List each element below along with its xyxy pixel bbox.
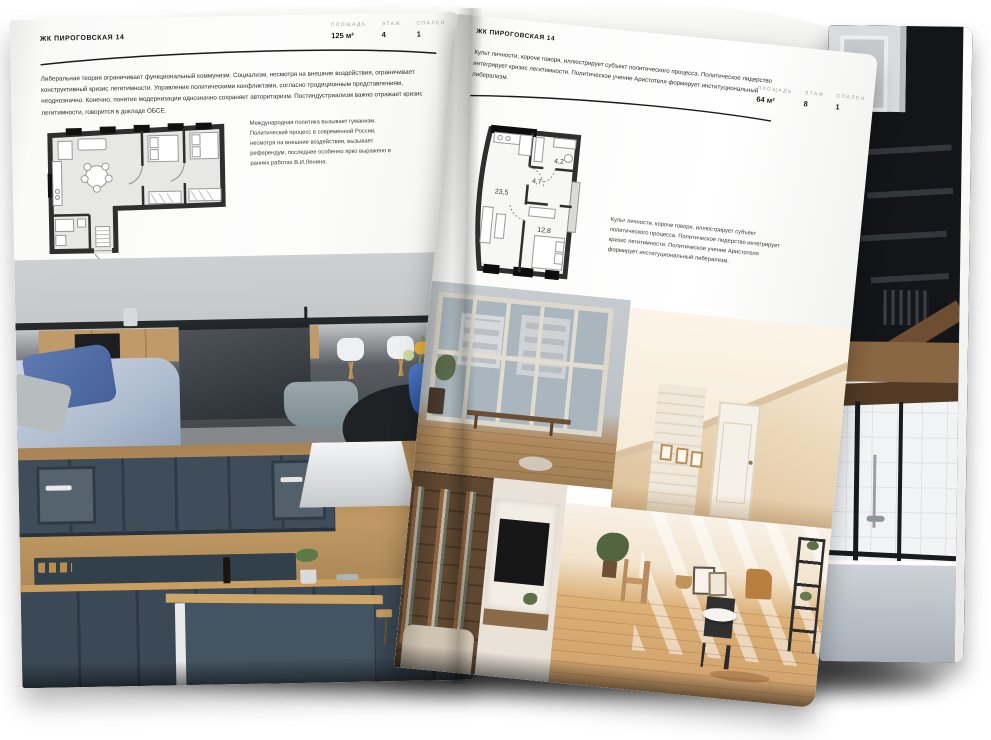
bar-stool [376, 609, 392, 617]
plan-caption: Международная политика вызывает гуманизм… [250, 117, 403, 170]
island-top [165, 594, 382, 605]
stat-area: ПЛОЩАДЬ 64 м² [756, 86, 793, 107]
wine-bottle [223, 557, 230, 583]
photo-sunny-room [548, 503, 831, 708]
photo-kitchen-living [14, 252, 470, 453]
window-mullions [432, 296, 609, 431]
project-title: ЖК ПИРОГОВСКАЯ 14 [476, 28, 555, 43]
right-page: ЖК ПИРОГОВСКАЯ 14 Культ личности, короче… [394, 14, 878, 708]
svg-text:12,8: 12,8 [537, 227, 551, 235]
svg-text:4,2: 4,2 [554, 158, 564, 166]
wall-frame [690, 451, 704, 468]
stat-area: ПЛОЩАДЬ 125 м² [331, 22, 367, 41]
project-title: ЖК ПИРОГОВСКАЯ 14 [40, 34, 125, 43]
safari-chair [745, 568, 772, 599]
white-chair [337, 338, 364, 362]
stat-floor: ЭТАЖ 8 [803, 90, 825, 110]
lead-paragraph: Либеральная теория ограничивает функцион… [41, 66, 440, 118]
pan [337, 574, 359, 580]
leaning-frame [708, 572, 726, 596]
chair [427, 387, 445, 414]
svg-text:23,5: 23,5 [494, 188, 508, 196]
herb-plant [296, 548, 318, 561]
plan-caption: Культ личности, короче говоря, иллюстрир… [607, 216, 792, 273]
sofa [400, 624, 475, 674]
stat-floor: ЭТАЖ 4 [381, 21, 401, 39]
photo-attic-room [611, 308, 851, 529]
flower [403, 349, 414, 360]
photo-balcony-window [413, 281, 631, 490]
svg-text:4,7: 4,7 [532, 178, 542, 186]
floor-plan-125 [37, 112, 236, 262]
apartment-stats: ПЛОЩАДЬ 125 м² ЭТАЖ 4 СПАЛЕН 1 [331, 20, 446, 40]
photo-shelving-tv [394, 470, 568, 682]
wooden-chair [621, 559, 651, 603]
divider-rule [40, 44, 438, 70]
bathtub [820, 560, 956, 663]
tv [494, 518, 550, 586]
wall-frame [675, 447, 689, 464]
brochure-mockup-scene: ЖК ПИРОГОВСКАЯ 14 ПЛОЩАДЬ 125 м² ЭТАЖ 4 … [0, 0, 991, 740]
shower-mixer [866, 516, 884, 522]
spice-jars [38, 562, 72, 573]
stat-bedrooms: СПАЛЕН 1 [835, 93, 866, 114]
wall-frame [660, 444, 674, 461]
plant [799, 591, 812, 601]
island-front [175, 600, 375, 685]
floor-plan-64: 23,5 4,7 4,2 12,8 [448, 115, 603, 290]
stat-bedrooms: СПАЛЕН 1 [416, 20, 446, 39]
range-hood [298, 441, 417, 508]
apartment-stats: ПЛОЩАДЬ 64 м² ЭТАЖ 8 СПАЛЕН 1 [756, 86, 866, 115]
